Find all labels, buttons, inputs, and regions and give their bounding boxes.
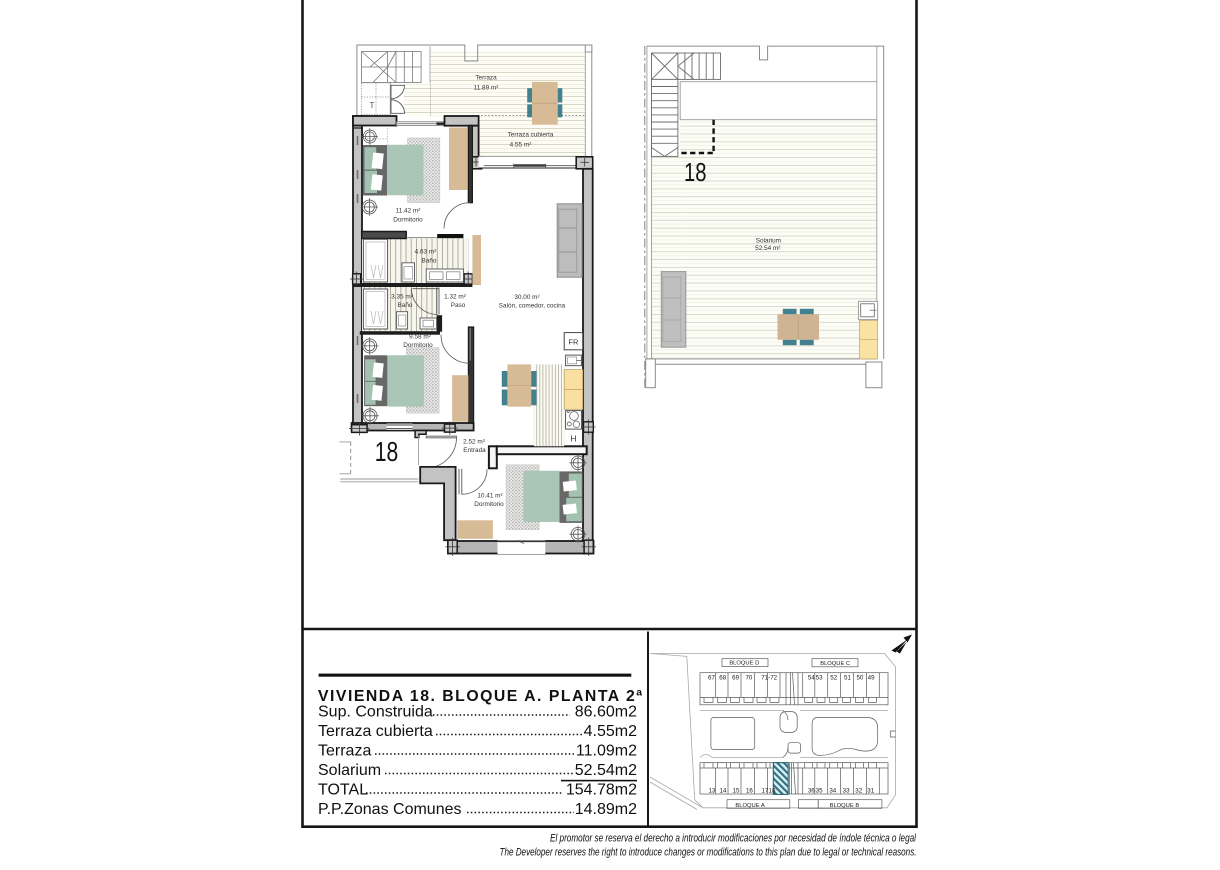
svg-text:68: 68 bbox=[719, 675, 726, 682]
svg-text:Terraza cubierta: Terraza cubierta bbox=[508, 132, 554, 139]
svg-text:4.55m2: 4.55m2 bbox=[584, 723, 637, 740]
svg-text:Terraza: Terraza bbox=[318, 743, 371, 760]
svg-text:33: 33 bbox=[843, 788, 850, 795]
svg-text:15: 15 bbox=[733, 788, 740, 795]
svg-text:Baño: Baño bbox=[422, 258, 437, 265]
svg-text:70: 70 bbox=[745, 675, 752, 682]
svg-text:P.P.Zonas Comunes: P.P.Zonas Comunes bbox=[318, 801, 462, 818]
svg-text:Terraza: Terraza bbox=[475, 75, 497, 82]
svg-text:51: 51 bbox=[844, 675, 851, 682]
svg-text:BLOQUE C: BLOQUE C bbox=[820, 661, 850, 667]
svg-text:18: 18 bbox=[684, 159, 707, 187]
svg-text:1.32 m²: 1.32 m² bbox=[444, 294, 466, 301]
svg-text:14.89m2: 14.89m2 bbox=[575, 801, 637, 818]
svg-text:2.52 m²: 2.52 m² bbox=[463, 439, 485, 446]
svg-text:36: 36 bbox=[808, 788, 815, 795]
svg-text:67: 67 bbox=[708, 675, 715, 682]
svg-text:154.78m2: 154.78m2 bbox=[566, 782, 637, 799]
svg-text:BLOQUE D: BLOQUE D bbox=[729, 661, 759, 667]
svg-text:13: 13 bbox=[708, 788, 715, 795]
svg-text:10.41 m²: 10.41 m² bbox=[477, 493, 502, 500]
svg-text:Sup. Construida: Sup. Construida bbox=[318, 704, 433, 721]
svg-text:54: 54 bbox=[808, 675, 815, 682]
svg-text:11.09m2: 11.09m2 bbox=[576, 743, 637, 760]
svg-text:86.60m2: 86.60m2 bbox=[575, 704, 637, 721]
svg-text:18: 18 bbox=[769, 788, 776, 795]
svg-text:18: 18 bbox=[375, 436, 399, 467]
svg-text:Baño: Baño bbox=[398, 302, 413, 309]
svg-text:Dormitorio: Dormitorio bbox=[393, 217, 423, 224]
svg-text:H: H bbox=[570, 434, 576, 444]
svg-text:Entrada: Entrada bbox=[463, 447, 486, 454]
svg-text:30.00 m²: 30.00 m² bbox=[514, 294, 539, 301]
svg-text:52: 52 bbox=[830, 675, 837, 682]
svg-text:71-72: 71-72 bbox=[761, 675, 777, 682]
svg-text:Salón, comedor, cocina: Salón, comedor, cocina bbox=[499, 303, 566, 310]
svg-text:TOTAL: TOTAL bbox=[318, 782, 368, 799]
svg-text:Dormitorio: Dormitorio bbox=[474, 501, 504, 508]
svg-text:14: 14 bbox=[720, 788, 727, 795]
svg-text:El promotor se reserva el dere: El promotor se reserva el derecho a intr… bbox=[550, 833, 916, 845]
svg-text:16: 16 bbox=[746, 788, 753, 795]
svg-text:52.54m2: 52.54m2 bbox=[575, 762, 637, 779]
svg-text:Solarium: Solarium bbox=[318, 762, 381, 779]
svg-text:11.42 m²: 11.42 m² bbox=[396, 208, 421, 215]
svg-text:69: 69 bbox=[732, 675, 739, 682]
svg-text:Dormitorio: Dormitorio bbox=[403, 342, 433, 349]
svg-text:Paso: Paso bbox=[451, 302, 466, 309]
svg-text:4.63 m²: 4.63 m² bbox=[415, 249, 437, 256]
svg-text:The Developer reserves the rig: The Developer reserves the right to intr… bbox=[500, 847, 917, 859]
svg-text:9.58 m²: 9.58 m² bbox=[409, 334, 431, 341]
svg-text:T: T bbox=[370, 101, 375, 110]
svg-text:Solarium: Solarium bbox=[756, 238, 781, 245]
svg-text:50: 50 bbox=[856, 675, 863, 682]
svg-text:VIVIENDA 18. BLOQUE A. PLANTA: VIVIENDA 18. BLOQUE A. PLANTA 2ª bbox=[318, 688, 644, 705]
svg-text:32: 32 bbox=[855, 788, 862, 795]
svg-text:53: 53 bbox=[816, 675, 823, 682]
svg-text:BLOQUE A: BLOQUE A bbox=[735, 803, 764, 809]
svg-text:52.54 m²: 52.54 m² bbox=[755, 245, 780, 252]
svg-text:49: 49 bbox=[868, 675, 875, 682]
svg-text:3.35 m²: 3.35 m² bbox=[391, 294, 413, 301]
svg-text:35: 35 bbox=[816, 788, 823, 795]
svg-text:FR: FR bbox=[568, 338, 579, 347]
svg-text:BLOQUE B: BLOQUE B bbox=[830, 803, 860, 809]
svg-text:34: 34 bbox=[829, 788, 836, 795]
svg-text:4.55 m²: 4.55 m² bbox=[510, 142, 532, 149]
svg-text:31: 31 bbox=[867, 788, 874, 795]
svg-text:Terraza cubierta: Terraza cubierta bbox=[318, 723, 433, 740]
svg-text:11.89 m²: 11.89 m² bbox=[474, 85, 499, 92]
